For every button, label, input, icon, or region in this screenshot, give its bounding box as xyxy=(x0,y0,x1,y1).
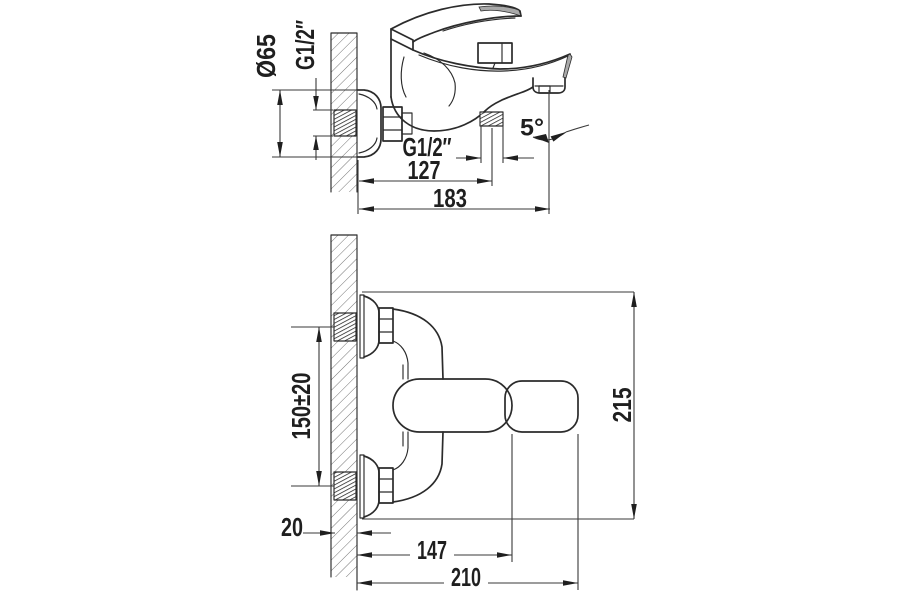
side-view-dimensions: Ø65 G1/2″ G1/2″ 127 xyxy=(251,20,589,214)
arrowhead xyxy=(466,155,481,161)
faucet-technical-drawing: Ø65 G1/2″ G1/2″ 127 xyxy=(0,0,900,600)
arrowhead xyxy=(277,90,283,105)
body-inner-arc-1 xyxy=(401,57,406,97)
arrowhead xyxy=(631,504,637,519)
wall-thread-pipe xyxy=(334,110,356,136)
arrowhead xyxy=(277,142,283,157)
dim-label-127: 127 xyxy=(408,155,441,185)
arrowhead xyxy=(503,155,518,161)
diverter-knob xyxy=(478,43,512,63)
arrowhead xyxy=(316,471,322,486)
thread-hatch xyxy=(334,110,356,136)
hose-thread-hatch xyxy=(480,112,503,126)
dim-label-wall-thread: G1/2″ xyxy=(290,20,320,70)
bottom-escutcheon-base xyxy=(360,455,364,518)
body-capsule xyxy=(393,379,512,432)
dim-label-183: 183 xyxy=(433,183,467,213)
arrowhead xyxy=(477,178,492,184)
bottom-escutcheon xyxy=(364,456,379,517)
dim-label-spout-angle: 5° xyxy=(520,115,544,142)
top-bell-outer xyxy=(393,309,443,379)
arrowhead xyxy=(313,136,319,150)
angle-leader xyxy=(566,125,589,132)
plan-view-mounts xyxy=(360,295,393,518)
handle-capsule xyxy=(505,381,578,432)
dim-label-connection-centers: 150±20 xyxy=(286,373,316,440)
arrowhead xyxy=(535,206,550,212)
top-escutcheon-base xyxy=(360,295,364,358)
dim-label-20: 20 xyxy=(281,512,303,542)
arrowhead xyxy=(357,552,372,558)
arrowhead xyxy=(357,530,372,536)
arrowhead xyxy=(563,580,578,586)
plan-view-faucet-body xyxy=(393,309,578,502)
plan-view: 150±20 215 20 147 xyxy=(281,235,637,592)
arrowhead xyxy=(497,552,512,558)
top-escutcheon xyxy=(364,296,379,357)
arrowhead xyxy=(313,96,319,110)
bottom-bell-inner xyxy=(393,432,408,470)
top-hex-nut xyxy=(379,308,393,343)
wall-hatch xyxy=(331,235,357,577)
handle-blade-bottom xyxy=(413,16,521,42)
escutcheon-highlight xyxy=(359,94,377,109)
dim-label-210: 210 xyxy=(451,562,481,592)
dim-label-147: 147 xyxy=(417,535,447,565)
bottom-hex-nut xyxy=(379,468,393,503)
bottom-bell-outer xyxy=(393,432,443,502)
arrowhead xyxy=(316,327,322,342)
plan-view-wall xyxy=(331,235,357,590)
aerator-notch xyxy=(539,86,550,93)
arrowhead xyxy=(359,178,374,184)
escutcheon-highlight-2 xyxy=(359,138,377,153)
technical-drawing-page: Ø65 G1/2″ G1/2″ 127 xyxy=(0,0,900,600)
top-bell-inner xyxy=(393,341,408,379)
side-view: Ø65 G1/2″ G1/2″ 127 xyxy=(251,4,589,214)
body-inner-arc-2 xyxy=(424,53,455,106)
hex-nut xyxy=(383,107,402,141)
arrowhead xyxy=(551,132,566,142)
arrowhead xyxy=(357,580,372,586)
arrowhead xyxy=(359,206,374,212)
dim-label-215: 215 xyxy=(607,388,637,423)
dim-label-flange-diameter: Ø65 xyxy=(251,34,281,78)
side-view-faucet-body xyxy=(391,4,572,131)
escutcheon xyxy=(357,90,381,157)
handle-front-face xyxy=(391,29,413,50)
arrowhead xyxy=(631,292,637,307)
